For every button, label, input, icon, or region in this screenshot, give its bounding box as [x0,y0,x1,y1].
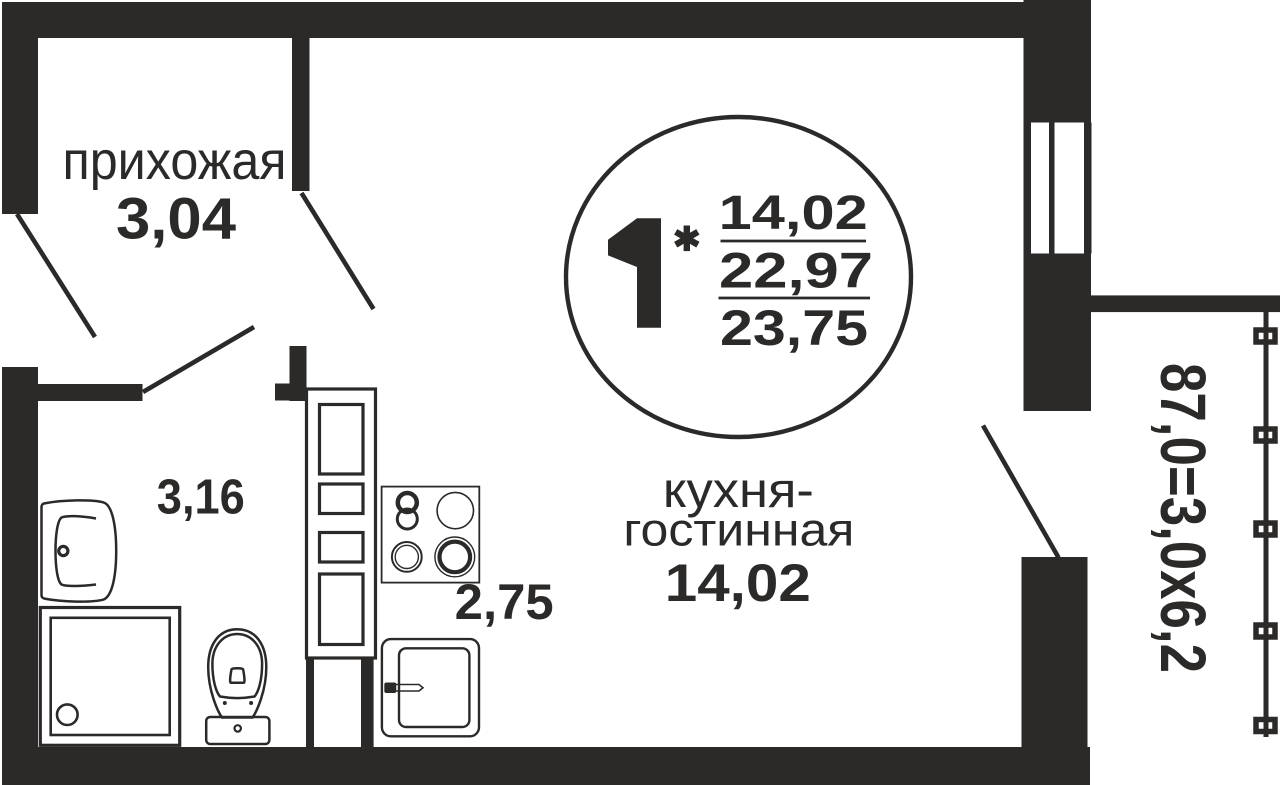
svg-text:23,75: 23,75 [720,300,868,356]
svg-text:14,02: 14,02 [665,554,811,613]
svg-text:3,16: 3,16 [157,470,245,525]
svg-text:2,75: 2,75 [455,574,554,630]
svg-text:3,04: 3,04 [116,187,236,252]
svg-text:22,97: 22,97 [719,243,873,299]
svg-text:прихожая: прихожая [63,131,287,191]
svg-text:гостинная: гостинная [623,503,854,555]
svg-text:87,0=3,0х6,2: 87,0=3,0х6,2 [1147,363,1219,673]
svg-text:14,02: 14,02 [719,187,868,240]
